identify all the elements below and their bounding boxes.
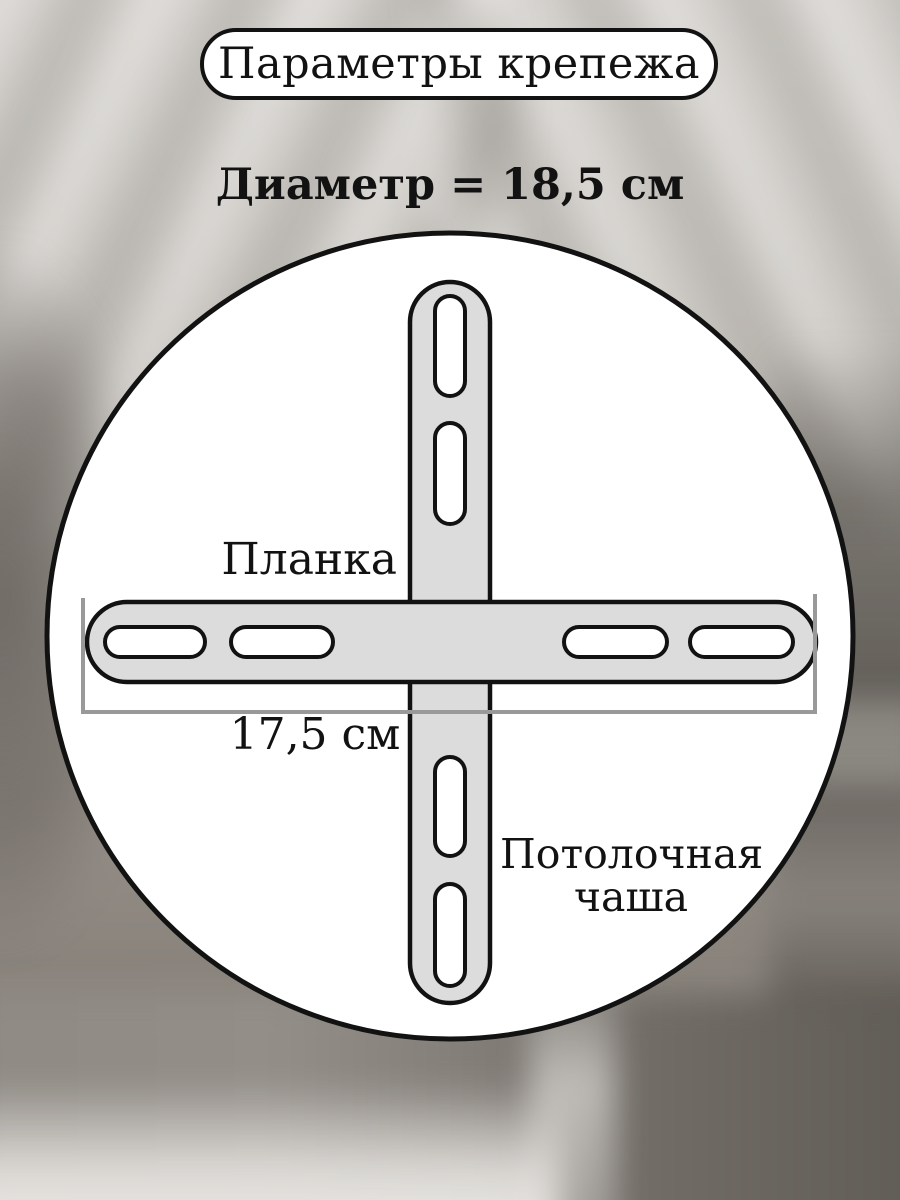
mount-slot: [105, 627, 205, 657]
mount-slot: [690, 627, 793, 657]
mount-slot: [231, 627, 333, 657]
title-badge: Параметры крепежа: [200, 28, 718, 100]
mount-slot: [435, 757, 465, 856]
mount-slot: [435, 423, 465, 524]
page-title: Параметры крепежа: [218, 39, 700, 89]
bar-length-label: 17,5 см: [215, 712, 415, 758]
diameter-label: Диаметр = 18,5 см: [150, 163, 750, 208]
mount-slot: [435, 296, 465, 396]
mount-slot: [435, 884, 465, 986]
mount-parameters-infographic: Параметры крепежа Диаметр = 18,5 см План…: [0, 0, 900, 1200]
bar-label: Планка: [147, 537, 397, 583]
mount-slot: [564, 627, 667, 657]
ceiling-cup-label: Потолочная чаша: [500, 833, 762, 919]
